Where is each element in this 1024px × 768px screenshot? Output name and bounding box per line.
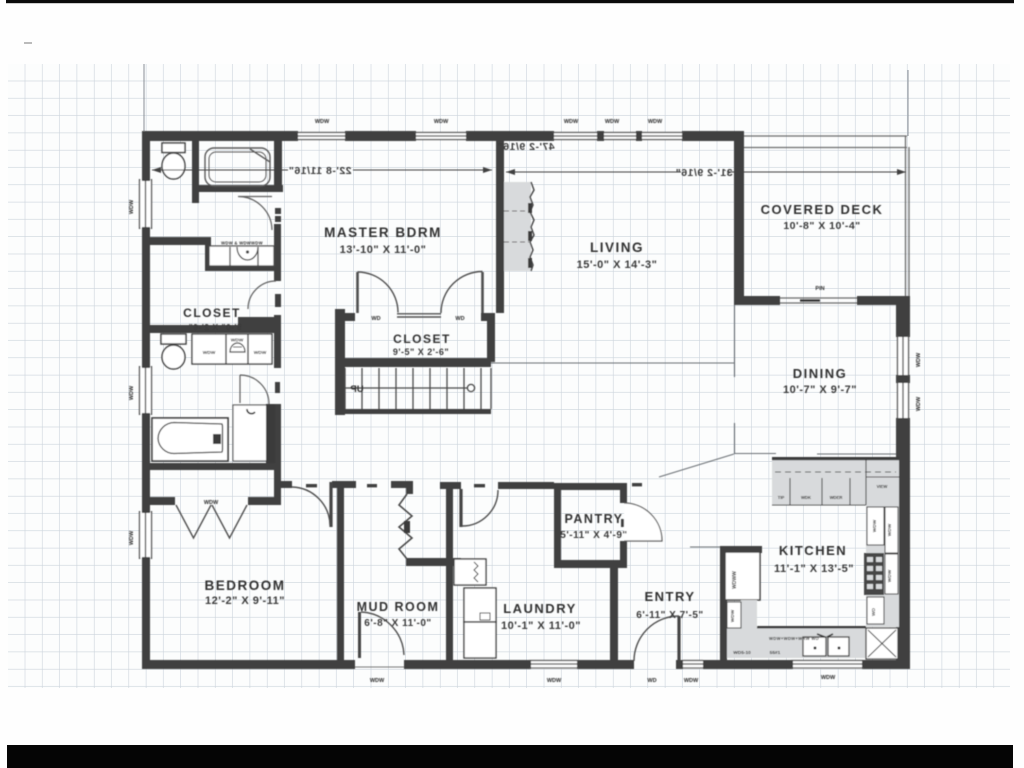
svg-text:UP: UP — [350, 384, 364, 395]
svg-text:WDWW: WDWW — [732, 571, 738, 589]
svg-text:6'-11" X 7'-5": 6'-11" X 7'-5" — [636, 610, 703, 621]
svg-text:WD5-10: WD5-10 — [733, 650, 751, 656]
svg-text:WDW: WDW — [872, 519, 878, 532]
svg-text:WDW+WDW+WRW WD: WDW+WDW+WRW WD — [769, 636, 819, 641]
svg-text:TIP: TIP — [778, 495, 785, 500]
svg-text:WDW: WDW — [916, 352, 922, 367]
svg-text:WD: WD — [371, 316, 380, 322]
svg-text:ENTRY: ENTRY — [644, 589, 695, 604]
svg-text:55#1: 55#1 — [770, 650, 781, 656]
svg-text:WDW & WDWWDW: WDW & WDWWDW — [221, 241, 263, 246]
svg-text:WDW: WDW — [730, 609, 736, 622]
svg-text:WDW: WDW — [315, 119, 330, 125]
svg-text:VIEW: VIEW — [877, 484, 888, 489]
svg-text:11'-1" X 13'-5": 11'-1" X 13'-5" — [774, 563, 854, 575]
svg-text:KITCHEN: KITCHEN — [779, 543, 847, 558]
svg-text:WDW: WDW — [684, 678, 699, 684]
svg-text:9'-5" X 2'-6": 9'-5" X 2'-6" — [393, 347, 449, 357]
svg-text:WDW: WDW — [434, 119, 449, 125]
svg-text:31'-2 9/16": 31'-2 9/16" — [675, 167, 732, 179]
svg-text:10'-8" X 10'-4": 10'-8" X 10'-4" — [783, 220, 860, 232]
svg-text:WDW: WDW — [254, 350, 267, 356]
svg-text:CLOSET: CLOSET — [393, 332, 451, 346]
svg-text:WDW: WDW — [129, 385, 135, 400]
svg-text:WDW: WDW — [204, 500, 219, 506]
svg-text:22'-8 11/16": 22'-8 11/16" — [288, 165, 351, 177]
svg-text:WDW: WDW — [648, 119, 663, 125]
svg-text:CLOSET: CLOSET — [183, 306, 241, 320]
svg-text:WDER: WDER — [830, 495, 843, 500]
svg-text:WDW: WDW — [129, 199, 135, 214]
svg-text:10'-7" X 9'-7": 10'-7" X 9'-7" — [783, 384, 857, 396]
svg-text:5'-0" X 2'-6": 5'-0" X 2'-6" — [188, 322, 242, 332]
svg-text:12'-2" X 9'-11": 12'-2" X 9'-11" — [205, 595, 285, 607]
svg-text:LAUNDRY: LAUNDRY — [503, 601, 577, 616]
svg-text:WD: WD — [647, 678, 656, 684]
svg-text:COVERED DECK: COVERED DECK — [761, 202, 884, 217]
svg-text:WDW: WDW — [231, 338, 244, 344]
svg-text:6'-8" X 11'-0": 6'-8" X 11'-0" — [364, 618, 431, 629]
svg-text:WDW: WDW — [564, 119, 579, 125]
svg-text:MUD ROOM: MUD ROOM — [357, 600, 440, 614]
svg-text:WDW: WDW — [887, 569, 893, 582]
svg-text:LIVING: LIVING — [590, 240, 644, 255]
svg-text:WDW: WDW — [605, 119, 620, 125]
svg-text:WDW: WDW — [547, 678, 562, 684]
svg-text:PIN: PIN — [815, 286, 824, 292]
svg-text:13'-10" X 11'-0": 13'-10" X 11'-0" — [340, 244, 427, 256]
svg-text:MASTER BDRM: MASTER BDRM — [324, 225, 442, 240]
svg-text:WDW: WDW — [129, 530, 135, 545]
svg-text:WDW: WDW — [203, 350, 216, 356]
svg-text:WD: WD — [871, 607, 877, 616]
svg-text:5'-11" X 4'-9": 5'-11" X 4'-9" — [560, 530, 627, 541]
svg-text:47'-2 9/16": 47'-2 9/16" — [497, 141, 554, 153]
svg-text:15'-0" X 14'-3": 15'-0" X 14'-3" — [577, 259, 658, 271]
svg-text:WDK: WDK — [801, 495, 811, 500]
svg-text:10'-1" X 11'-0": 10'-1" X 11'-0" — [501, 620, 581, 632]
svg-text:WDW: WDW — [821, 675, 836, 681]
svg-text:WDW: WDW — [887, 523, 893, 536]
svg-text:WDW: WDW — [370, 678, 385, 684]
svg-text:BEDROOM: BEDROOM — [205, 578, 286, 593]
svg-text:PANTRY: PANTRY — [565, 512, 624, 526]
svg-text:WD: WD — [455, 316, 464, 322]
svg-text:WDW: WDW — [916, 396, 922, 411]
svg-text:DINING: DINING — [793, 366, 848, 381]
